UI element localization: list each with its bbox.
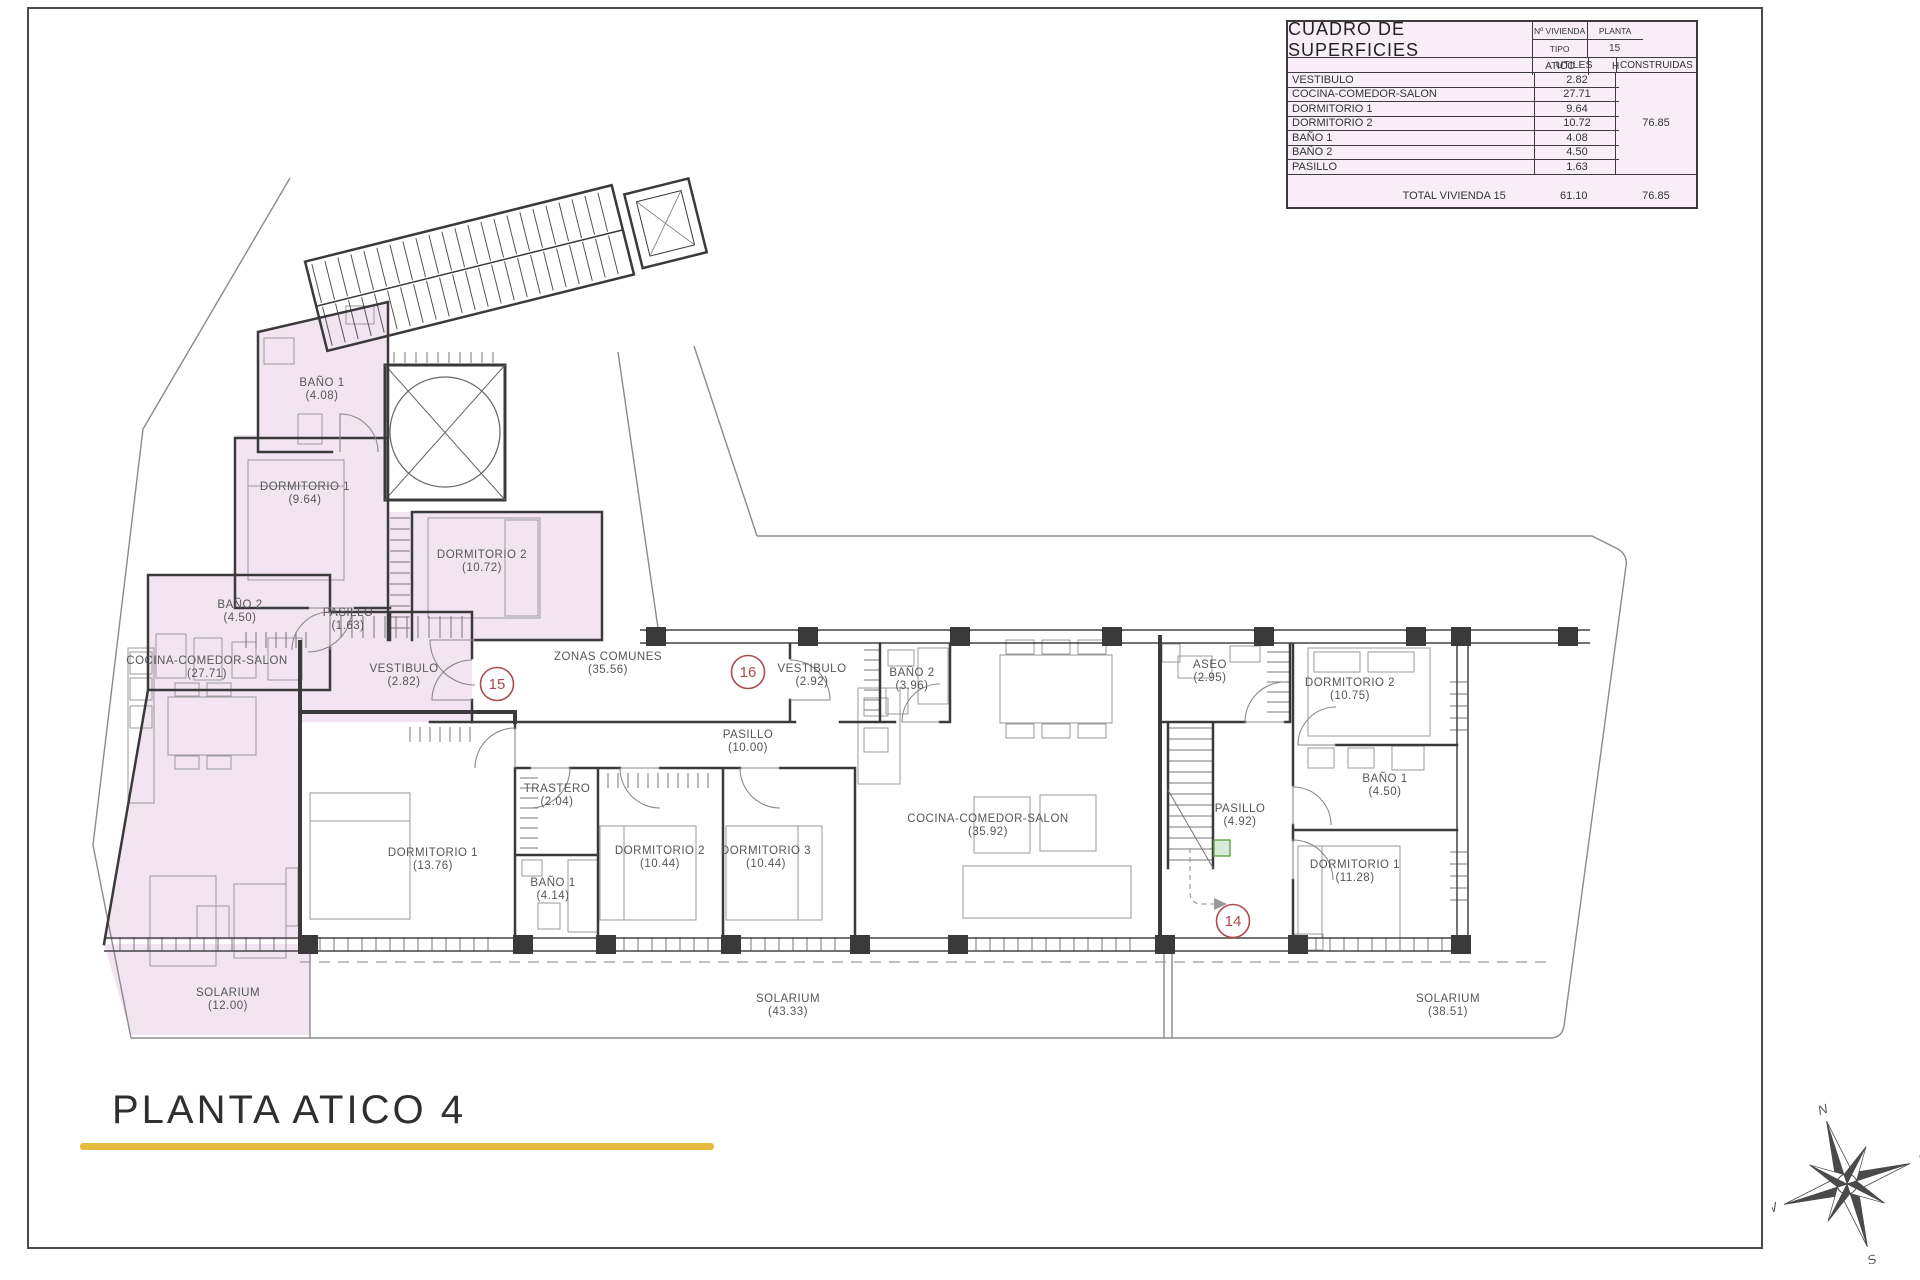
surfaces-table-row: DORMITORIO 1 9.64 bbox=[1288, 102, 1619, 117]
utiles-column-label: UTILES bbox=[1532, 58, 1616, 72]
construidas-merged-value: 76.85 bbox=[1615, 73, 1696, 175]
apartment15-fill bbox=[104, 302, 602, 1035]
row-utiles: 2.82 bbox=[1534, 73, 1619, 87]
row-label: VESTIBULO bbox=[1288, 73, 1534, 87]
room-label-vest_16: VESTIBULO(2.92) bbox=[777, 663, 846, 688]
title-underline bbox=[80, 1143, 714, 1150]
room-label-bano1_16: BAÑO 1(4.14) bbox=[530, 876, 575, 902]
drawing-sheet: BAÑO 1(4.08)DORMITORIO 1(9.64)DORMITORIO… bbox=[0, 0, 1920, 1280]
row-label: PASILLO bbox=[1288, 160, 1534, 174]
header-planta-label: PLANTA bbox=[1587, 22, 1643, 40]
compass-letter-e: E bbox=[1916, 1150, 1920, 1167]
construidas-column-label: CONSTRUIDAS bbox=[1616, 58, 1696, 72]
unit-badge-number-14: 14 bbox=[1225, 913, 1242, 930]
row-label: BAÑO 1 bbox=[1288, 131, 1534, 145]
unit-badge-number-16: 16 bbox=[740, 664, 757, 681]
row-label: DORMITORIO 2 bbox=[1288, 117, 1534, 131]
surfaces-table-row: BAÑO 2 4.50 bbox=[1288, 146, 1619, 161]
room-label-dorm1_14: DORMITORIO 1(11.28) bbox=[1310, 859, 1400, 884]
room-label-pasillo_14: PASILLO(4.92) bbox=[1215, 803, 1266, 828]
surfaces-table-row: PASILLO 1.63 bbox=[1288, 160, 1619, 175]
room-label-solarium_16: SOLARIUM(43.33) bbox=[756, 993, 820, 1018]
row-label: DORMITORIO 1 bbox=[1288, 102, 1534, 116]
surfaces-table-body: VESTIBULO 2.82COCINA-COMEDOR-SALON 27.71… bbox=[1288, 73, 1696, 175]
room-label-dorm2_16: DORMITORIO 2(10.44) bbox=[615, 845, 705, 870]
header-tipo-label: TIPO bbox=[1532, 40, 1587, 58]
room-label-cocina_16: COCINA-COMEDOR-SALON(35.92) bbox=[907, 813, 1068, 838]
row-utiles: 9.64 bbox=[1534, 102, 1619, 116]
compass-rose-icon: NESW bbox=[1772, 1100, 1920, 1264]
row-label: COCINA-COMEDOR-SALON bbox=[1288, 88, 1534, 102]
elevator-shaft bbox=[385, 365, 505, 500]
surfaces-table-title: CUADRO DE SUPERFICIES bbox=[1288, 22, 1532, 57]
total-construidas: 76.85 bbox=[1616, 186, 1696, 207]
row-utiles: 10.72 bbox=[1534, 117, 1619, 131]
surfaces-table-total-row: TOTAL VIVIENDA 15 61.10 76.85 bbox=[1288, 186, 1696, 207]
row-utiles: 4.50 bbox=[1534, 146, 1619, 160]
surfaces-table-row: COCINA-COMEDOR-SALON 27.71 bbox=[1288, 88, 1619, 103]
compass-letter-s: S bbox=[1865, 1251, 1878, 1264]
room-label-pasillo_16: PASILLO(10.00) bbox=[723, 729, 774, 754]
header-vivienda-value: 15 bbox=[1587, 40, 1642, 57]
room-label-trastero: TRASTERO(2.04) bbox=[524, 783, 591, 808]
unit-badge-number-15: 15 bbox=[489, 676, 506, 693]
room-label-bano2_16: BAÑO 2(3.96) bbox=[889, 666, 934, 692]
room-label-aseo_14: ASEO(2.95) bbox=[1193, 659, 1227, 684]
row-utiles: 27.71 bbox=[1534, 88, 1619, 102]
compass-letter-n: N bbox=[1816, 1101, 1830, 1118]
room-label-bano1_14: BAÑO 1(4.50) bbox=[1362, 772, 1407, 798]
surfaces-table: CUADRO DE SUPERFICIES Nº VIVIENDA PLANTA… bbox=[1286, 20, 1698, 209]
surfaces-table-row: BAÑO 1 4.08 bbox=[1288, 131, 1619, 146]
room-label-dorm2_14: DORMITORIO 2(10.75) bbox=[1305, 677, 1395, 702]
stair-highlight-green bbox=[1214, 840, 1230, 856]
room-label-dorm1_16: DORMITORIO 1(13.76) bbox=[388, 847, 478, 872]
row-label: BAÑO 2 bbox=[1288, 146, 1534, 160]
compass-letter-w: W bbox=[1772, 1199, 1781, 1218]
unit14-access-arrow bbox=[1190, 848, 1227, 910]
total-utiles: 61.10 bbox=[1532, 186, 1616, 207]
room-label-solarium_14: SOLARIUM(38.51) bbox=[1416, 993, 1480, 1018]
row-utiles: 1.63 bbox=[1534, 160, 1619, 174]
row-utiles: 4.08 bbox=[1534, 131, 1619, 145]
page-title: PLANTA ATICO 4 bbox=[112, 1088, 466, 1133]
total-label: TOTAL VIVIENDA 15 bbox=[1288, 186, 1532, 207]
surfaces-table-row: DORMITORIO 2 10.72 bbox=[1288, 117, 1619, 132]
surfaces-table-subheader: UTILES CONSTRUIDAS bbox=[1288, 58, 1696, 73]
surfaces-table-header: CUADRO DE SUPERFICIES Nº VIVIENDA PLANTA… bbox=[1288, 22, 1696, 58]
surfaces-table-row: VESTIBULO 2.82 bbox=[1288, 73, 1619, 88]
header-vivienda-label: Nº VIVIENDA bbox=[1532, 22, 1587, 40]
room-label-zonas: ZONAS COMUNES(35.56) bbox=[554, 651, 662, 676]
